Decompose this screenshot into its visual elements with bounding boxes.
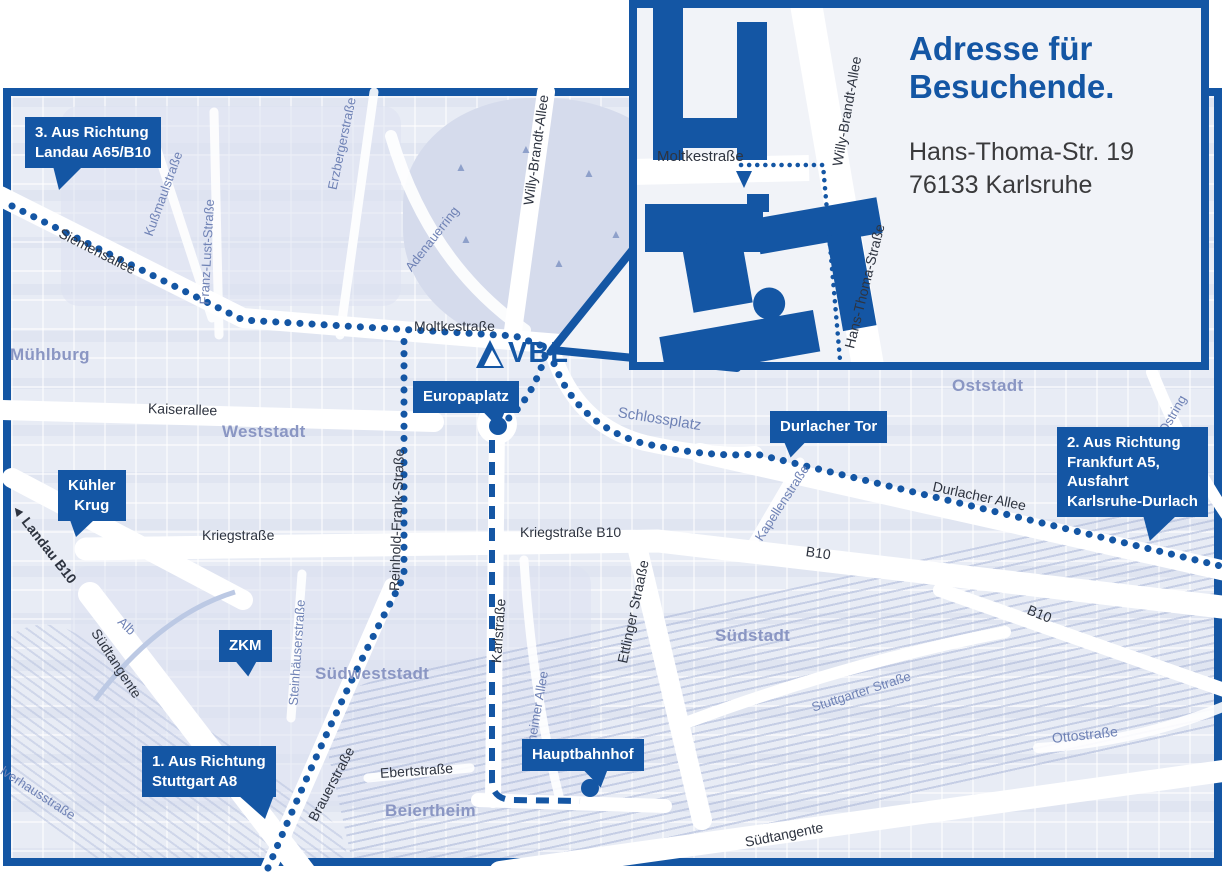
route-arrow-down-icon [736,171,752,188]
pin-durlacher-tor: Durlacher Tor [770,411,887,443]
address-city: 76133 Karlsruhe [909,169,1134,202]
inset-label-willy-brandt-allee: Willy-Brandt-Allee [829,55,864,167]
district-label-suedstadt: Südstadt [715,626,790,646]
inset-label-moltkestrasse: Moltkestraße [657,148,744,165]
pin-line: 3. Aus Richtung [35,123,151,143]
district-label-weststadt: Weststadt [222,422,306,442]
pin-route-1-stuttgart: 1. Aus Richtung Stuttgart A8 [142,746,276,797]
inset-title-line2: Besuchende. [909,68,1114,106]
street-label-moltkestrasse: Moltkestraße [414,318,495,334]
street-label-kriegstrasse-b10: Kriegstraße B10 [520,524,621,540]
pin-kuehler-krug: Kühler Krug [58,470,126,521]
district-label-beiertheim: Beiertheim [385,801,476,821]
pin-hauptbahnhof: Hauptbahnhof [522,739,644,771]
district-label-muehlburg: Mühlburg [10,345,90,365]
street-label-kaiserallee: Kaiserallee [148,400,218,418]
inset-title: Adresse für Besuchende. [909,30,1114,106]
pin-line: Stuttgart A8 [152,772,266,792]
pin-line: Kühler [68,476,116,496]
pin-line: Frankfurt A5, [1067,453,1198,473]
tree-icon: ▲ [460,232,472,246]
pin-line: Krug [68,496,116,516]
pin-line: ZKM [229,636,262,656]
pin-line: 2. Aus Richtung [1067,433,1198,453]
pin-zkm: ZKM [219,630,272,662]
vbl-logo-text: VBL [508,337,569,370]
pin-line: Hauptbahnhof [532,745,634,765]
pin-line: 1. Aus Richtung [152,752,266,772]
address-street: Hans-Thoma-Str. 19 [909,136,1134,169]
inset-approach-route [741,165,840,360]
inset-title-line1: Adresse für [909,30,1114,68]
street-label-b10-west: B10 [805,543,832,562]
pin-europaplatz: Europaplatz [413,381,519,413]
pin-line: Ausfahrt [1067,472,1198,492]
pin-route-2-frankfurt: 2. Aus Richtung Frankfurt A5, Ausfahrt K… [1057,427,1208,517]
pin-route-3-landau: 3. Aus Richtung Landau A65/B10 [25,117,161,168]
pin-line: Karlsruhe-Durlach [1067,492,1198,512]
pin-line: Europaplatz [423,387,509,407]
tree-icon: ▲ [583,166,595,180]
street-label-kriegstrasse: Kriegstraße [202,527,274,543]
tree-icon: ▲ [455,160,467,174]
inset-street-moltkestrasse [637,168,809,172]
tree-icon: ▲ [553,256,565,270]
visitor-address: Hans-Thoma-Str. 19 76133 Karlsruhe [909,136,1134,201]
address-inset: Moltkestraße Willy-Brandt-Allee Hans-Tho… [629,0,1209,370]
district-label-suedweststadt: Südweststadt [315,664,429,684]
vbl-triangle-icon [475,338,505,370]
inset-label-hans-thoma-strasse: Hans-Thoma-Straße [841,222,887,350]
tree-icon: ▲ [610,227,622,241]
pin-line: Landau A65/B10 [35,143,151,163]
pin-line: Durlacher Tor [780,417,877,437]
district-label-oststadt: Oststadt [952,376,1023,396]
vbl-logo: VBL [475,337,569,370]
